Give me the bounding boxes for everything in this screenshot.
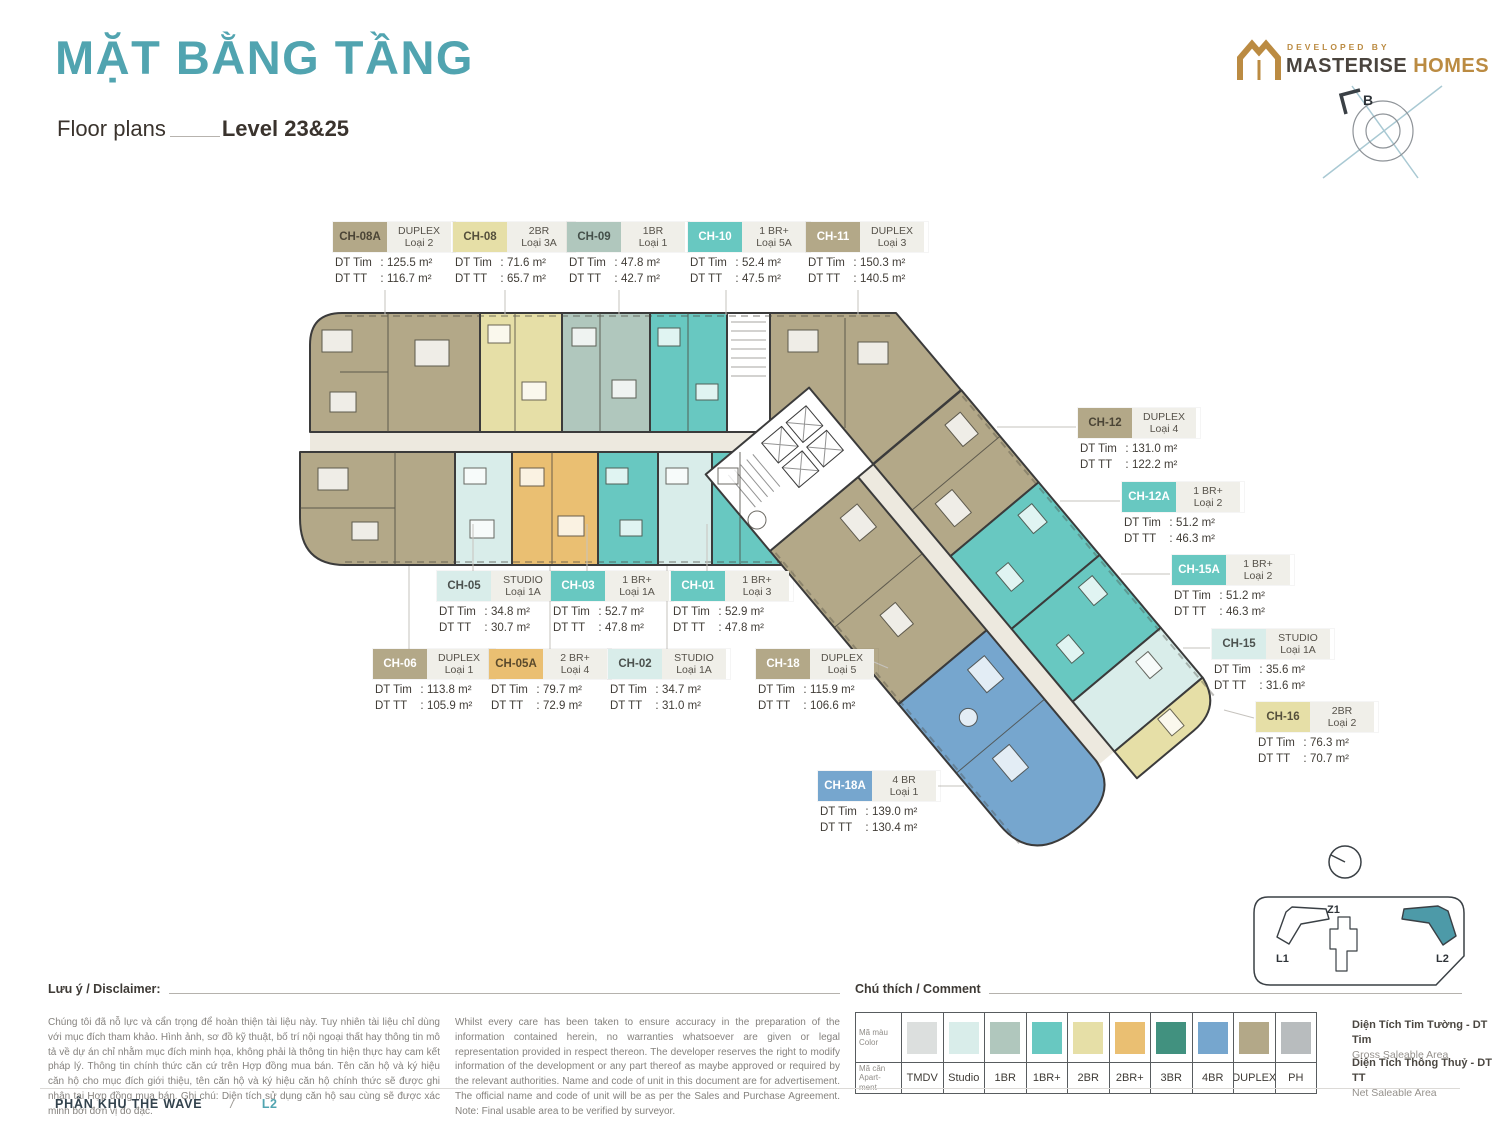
legend-color-row-label: Mã màuColor (856, 1013, 902, 1063)
gross-area-label: DT Tim (820, 805, 862, 821)
net-area-value: 47.8 m² (725, 621, 764, 637)
gross-area-label: DT Tim (375, 683, 417, 699)
unit-code-badge: CH-15A (1172, 555, 1226, 585)
net-area-value: 65.7 m² (507, 272, 546, 288)
unit-type: DUPLEX (810, 652, 874, 665)
minimap-label-L1: L1 (1276, 953, 1289, 965)
legend-title: Chú thích / Comment (855, 982, 981, 996)
legend-code-3br: 3BR (1151, 1063, 1193, 1094)
gross-area-label: DT Tim (610, 683, 652, 699)
net-area-label: DT TT (1174, 605, 1216, 621)
unit-variant: Loại 2 (1310, 717, 1374, 730)
unit-variant: Loại 2 (1226, 570, 1290, 583)
unit-variant: Loại 1A (605, 586, 669, 599)
gross-area-label: DT Tim (455, 256, 497, 272)
unit-type: 1 BR+ (742, 225, 806, 238)
unit-code-badge: CH-18 (756, 649, 810, 679)
unit-code-badge: CH-05 (437, 571, 491, 601)
unit-type: DUPLEX (860, 225, 924, 238)
site-minimap: L1 Z1 L2 (1254, 846, 1464, 985)
unit-code-badge: CH-06 (373, 649, 427, 679)
unit-label-CH-09: CH-091BRLoại 1DT Tim:47.8 m²DT TT:42.7 m… (567, 222, 689, 287)
unit-areas: DT Tim:150.3 m²DT TT:140.5 m² (806, 256, 928, 287)
net-area-value: 47.5 m² (742, 272, 781, 288)
compass-north-label: B (1363, 92, 1373, 108)
gross-area-value: 113.8 m² (427, 683, 472, 699)
developer-tagline: DEVELOPED BY (1287, 42, 1390, 52)
unit-areas: DT Tim:76.3 m²DT TT:70.7 m² (1256, 736, 1378, 767)
net-area-label: DT TT (553, 621, 595, 637)
net-area-value: 105.9 m² (427, 699, 472, 715)
unit-label-CH-10: CH-101 BR+Loại 5ADT Tim:52.4 m²DT TT:47.… (688, 222, 810, 287)
unit-label-CH-03: CH-031 BR+Loại 1ADT Tim:52.7 m²DT TT:47.… (551, 571, 673, 636)
unit-type: DUPLEX (427, 652, 491, 665)
footer: PHÂN KHU THE WAVE / L2 (55, 1097, 277, 1111)
unit-label-CH-06: CH-06DUPLEXLoại 1DT Tim:113.8 m²DT TT:10… (373, 649, 495, 714)
gross-area-value: 52.7 m² (605, 605, 644, 621)
net-area-label: DT TT (808, 272, 850, 288)
disclaimer-heading: Lưu ý / Disclaimer: (48, 982, 840, 996)
gross-area-value: 150.3 m² (860, 256, 905, 272)
unit-type-cell: 1BRLoại 1 (621, 222, 685, 252)
unit-code-badge: CH-18A (818, 771, 872, 801)
gross-area-label: DT Tim (690, 256, 732, 272)
legend-code-1brp: 1BR+ (1027, 1063, 1069, 1094)
gross-area-label: DT Tim (335, 256, 377, 272)
unit-type: 4 BR (872, 774, 936, 787)
gross-area-value: 51.2 m² (1176, 516, 1215, 532)
unit-variant: Loại 1 (427, 664, 491, 677)
unit-areas: DT Tim:71.6 m²DT TT:65.7 m² (453, 256, 575, 287)
legend-swatch-4br (1193, 1013, 1235, 1063)
gross-area-value: 125.5 m² (387, 256, 432, 272)
unit-variant: Loại 3 (725, 586, 789, 599)
legend-table: Mã màuColor Mã cănApart-ment TMDV Studio… (855, 1012, 1317, 1094)
page-subtitle: Floor plans Level 23&25 (57, 116, 349, 142)
unit-code-badge: CH-09 (567, 222, 621, 252)
unit-label-CH-15: CH-15STUDIOLoại 1ADT Tim:35.6 m²DT TT:31… (1212, 629, 1334, 694)
legend-swatch-1brp (1027, 1013, 1069, 1063)
net-area-label: DT TT (569, 272, 611, 288)
unit-code-badge: CH-12 (1078, 408, 1132, 438)
unit-variant: Loại 1A (491, 586, 555, 599)
unit-type-cell: 2BRLoại 2 (1310, 702, 1374, 732)
unit-variant: Loại 3A (507, 237, 571, 250)
gross-area-value: 76.3 m² (1310, 736, 1349, 752)
unit-type: 2 BR+ (543, 652, 607, 665)
net-area-value: 116.7 m² (387, 272, 432, 288)
net-area-label: DT TT (375, 699, 417, 715)
unit-type: DUPLEX (387, 225, 451, 238)
footer-tower-label: L2 (262, 1097, 278, 1111)
gross-area-value: 47.8 m² (621, 256, 660, 272)
legend-code-1br: 1BR (985, 1063, 1027, 1094)
unit-type: STUDIO (1266, 632, 1330, 645)
net-area-value: 70.7 m² (1310, 752, 1349, 768)
unit-areas: DT Tim:47.8 m²DT TT:42.7 m² (567, 256, 689, 287)
unit-code-badge: CH-16 (1256, 702, 1310, 732)
unit-code-badge: CH-08 (453, 222, 507, 252)
gross-area-value: 52.4 m² (742, 256, 781, 272)
legend-code-2brp: 2BR+ (1110, 1063, 1152, 1094)
net-area-label: DT TT (335, 272, 377, 288)
unit-code-badge: CH-11 (806, 222, 860, 252)
unit-code-badge: CH-10 (688, 222, 742, 252)
net-area-value: 42.7 m² (621, 272, 660, 288)
net-area-label: DT TT (1124, 532, 1166, 548)
net-area-label: DT TT (1080, 458, 1122, 474)
net-area-value: 130.4 m² (872, 821, 917, 837)
subtitle-divider-line (170, 136, 220, 137)
footer-divider (40, 1088, 1460, 1089)
net-area-value: 31.0 m² (662, 699, 701, 715)
gross-area-label: DT Tim (673, 605, 715, 621)
unit-type-cell: DUPLEXLoại 4 (1132, 408, 1196, 438)
unit-type-cell: 2BRLoại 3A (507, 222, 571, 252)
net-area-value: 122.2 m² (1132, 458, 1177, 474)
net-definition-vi: Diện Tích Thông Thuỷ - DT TT (1352, 1056, 1497, 1086)
unit-type-cell: STUDIOLoại 1A (662, 649, 726, 679)
unit-type-cell: 1 BR+Loại 3 (725, 571, 789, 601)
net-area-value: 46.3 m² (1176, 532, 1215, 548)
unit-code-badge: CH-02 (608, 649, 662, 679)
legend-code-row-label: Mã cănApart-ment (856, 1063, 902, 1094)
unit-code-badge: CH-01 (671, 571, 725, 601)
gross-area-value: 131.0 m² (1132, 442, 1177, 458)
unit-areas: DT Tim:125.5 m²DT TT:116.7 m² (333, 256, 455, 287)
unit-label-CH-11: CH-11DUPLEXLoại 3DT Tim:150.3 m²DT TT:14… (806, 222, 928, 287)
net-area-value: 140.5 m² (860, 272, 905, 288)
floor-plan-page: B L1 Z1 L2 MẶT BẰNG TẦNG Floor plans Lev… (0, 0, 1500, 1125)
minimap-label-L2: L2 (1436, 953, 1449, 965)
legend-swatch-studio (944, 1013, 986, 1063)
gross-area-label: DT Tim (1080, 442, 1122, 458)
unit-type: 1 BR+ (605, 574, 669, 587)
unit-label-CH-18: CH-18DUPLEXLoại 5DT Tim:115.9 m²DT TT:10… (756, 649, 878, 714)
legend-swatch-ph (1276, 1013, 1318, 1063)
developer-name-secondary: HOMES (1413, 55, 1489, 77)
footer-separator: / (230, 1097, 233, 1111)
unit-type-cell: 1 BR+Loại 2 (1226, 555, 1290, 585)
unit-code-badge: CH-03 (551, 571, 605, 601)
unit-label-CH-12A: CH-12A1 BR+Loại 2DT Tim:51.2 m²DT TT:46.… (1122, 482, 1244, 547)
unit-variant: Loại 1 (872, 786, 936, 799)
net-area-label: DT TT (455, 272, 497, 288)
legend-code-duplex: DUPLEX (1234, 1063, 1276, 1094)
unit-type-cell: DUPLEXLoại 3 (860, 222, 924, 252)
unit-variant: Loại 1A (662, 664, 726, 677)
net-area-value: 30.7 m² (491, 621, 530, 637)
net-area-value: 72.9 m² (543, 699, 582, 715)
unit-areas: DT Tim:115.9 m²DT TT:106.6 m² (756, 683, 878, 714)
disclaimer-title: Lưu ý / Disclaimer: (48, 982, 161, 996)
developer-name-primary: MASTERISE (1286, 55, 1407, 77)
unit-type: 1BR (621, 225, 685, 238)
unit-areas: DT Tim:34.8 m²DT TT:30.7 m² (437, 605, 559, 636)
net-area-label: DT TT (690, 272, 732, 288)
unit-type-cell: 1 BR+Loại 1A (605, 571, 669, 601)
legend-code-ph: PH (1276, 1063, 1318, 1094)
unit-areas: DT Tim:131.0 m²DT TT:122.2 m² (1078, 442, 1200, 473)
unit-variant: Loại 4 (543, 664, 607, 677)
unit-type-cell: DUPLEXLoại 5 (810, 649, 874, 679)
unit-label-CH-05A: CH-05A2 BR+Loại 4DT Tim:79.7 m²DT TT:72.… (489, 649, 611, 714)
legend-code-tmdv: TMDV (902, 1063, 944, 1094)
gross-area-label: DT Tim (569, 256, 611, 272)
legend-code-2br: 2BR (1068, 1063, 1110, 1094)
unit-type: 2BR (507, 225, 571, 238)
legend-swatch-1br (985, 1013, 1027, 1063)
unit-label-CH-15A: CH-15A1 BR+Loại 2DT Tim:51.2 m²DT TT:46.… (1172, 555, 1294, 620)
net-area-label: DT TT (758, 699, 800, 715)
legend-heading: Chú thích / Comment (855, 982, 1462, 996)
unit-areas: DT Tim:113.8 m²DT TT:105.9 m² (373, 683, 495, 714)
footer-zone-label: PHÂN KHU THE WAVE (55, 1097, 202, 1111)
gross-area-value: 35.6 m² (1266, 663, 1305, 679)
unit-type-cell: STUDIOLoại 1A (491, 571, 555, 601)
unit-code-badge: CH-12A (1122, 482, 1176, 512)
unit-label-CH-08A: CH-08ADUPLEXLoại 2DT Tim:125.5 m²DT TT:1… (333, 222, 455, 287)
gross-area-label: DT Tim (808, 256, 850, 272)
unit-areas: DT Tim:35.6 m²DT TT:31.6 m² (1212, 663, 1334, 694)
gross-area-label: DT Tim (1214, 663, 1256, 679)
area-definition-net: Diện Tích Thông Thuỷ - DT TT Net Saleabl… (1352, 1056, 1497, 1101)
legend-swatch-3br (1151, 1013, 1193, 1063)
masterise-logo-mark (1240, 44, 1278, 80)
gross-area-label: DT Tim (491, 683, 533, 699)
legend-swatch-2br (1068, 1013, 1110, 1063)
unit-code-badge: CH-08A (333, 222, 387, 252)
unit-variant: Loại 5A (742, 237, 806, 250)
unit-code-badge: CH-05A (489, 649, 543, 679)
net-area-label: DT TT (1258, 752, 1300, 768)
unit-type-cell: 2 BR+Loại 4 (543, 649, 607, 679)
net-area-label: DT TT (439, 621, 481, 637)
level-label: Level 23&25 (222, 116, 349, 142)
unit-variant: Loại 1 (621, 237, 685, 250)
unit-label-CH-05: CH-05STUDIOLoại 1ADT Tim:34.8 m²DT TT:30… (437, 571, 559, 636)
unit-variant: Loại 5 (810, 664, 874, 677)
gross-area-value: 52.9 m² (725, 605, 764, 621)
unit-label-CH-18A: CH-18A4 BRLoại 1DT Tim:139.0 m²DT TT:130… (818, 771, 940, 836)
unit-areas: DT Tim:51.2 m²DT TT:46.3 m² (1172, 589, 1294, 620)
net-area-value: 47.8 m² (605, 621, 644, 637)
net-area-value: 46.3 m² (1226, 605, 1265, 621)
net-area-label: DT TT (1214, 679, 1256, 695)
net-area-label: DT TT (491, 699, 533, 715)
unit-variant: Loại 2 (1176, 497, 1240, 510)
net-area-label: DT TT (673, 621, 715, 637)
net-area-value: 106.6 m² (810, 699, 855, 715)
minimap-label-Z1: Z1 (1327, 904, 1340, 916)
unit-type-cell: STUDIOLoại 1A (1266, 629, 1330, 659)
disclaimer-text-en: Whilst every care has been taken to ensu… (455, 1016, 840, 1120)
unit-type: DUPLEX (1132, 411, 1196, 424)
unit-label-CH-16: CH-162BRLoại 2DT Tim:76.3 m²DT TT:70.7 m… (1256, 702, 1378, 767)
unit-areas: DT Tim:34.7 m²DT TT:31.0 m² (608, 683, 730, 714)
net-area-value: 31.6 m² (1266, 679, 1305, 695)
net-area-label: DT TT (820, 821, 862, 837)
gross-area-value: 34.7 m² (662, 683, 701, 699)
legend-swatch-tmdv (902, 1013, 944, 1063)
unit-type: STUDIO (491, 574, 555, 587)
unit-variant: Loại 1A (1266, 644, 1330, 657)
unit-type-cell: 1 BR+Loại 2 (1176, 482, 1240, 512)
gross-area-value: 139.0 m² (872, 805, 917, 821)
developer-name: MASTERISEHOMES (1286, 55, 1489, 78)
page-title: MẶT BẰNG TẦNG (55, 30, 474, 85)
unit-type: STUDIO (662, 652, 726, 665)
unit-label-CH-12: CH-12DUPLEXLoại 4DT Tim:131.0 m²DT TT:12… (1078, 408, 1200, 473)
disclaimer-rule (169, 993, 840, 994)
unit-label-CH-01: CH-011 BR+Loại 3DT Tim:52.9 m²DT TT:47.8… (671, 571, 793, 636)
unit-label-CH-08: CH-082BRLoại 3ADT Tim:71.6 m²DT TT:65.7 … (453, 222, 575, 287)
unit-variant: Loại 4 (1132, 423, 1196, 436)
gross-area-label: DT Tim (758, 683, 800, 699)
subtitle-label: Floor plans (57, 116, 166, 142)
legend-swatch-2brp (1110, 1013, 1152, 1063)
unit-type: 1 BR+ (725, 574, 789, 587)
gross-definition-vi: Diện Tích Tim Tường - DT Tim (1352, 1018, 1497, 1048)
unit-type: 2BR (1310, 705, 1374, 718)
gross-area-value: 34.8 m² (491, 605, 530, 621)
legend-code-studio: Studio (944, 1063, 986, 1094)
gross-area-value: 115.9 m² (810, 683, 855, 699)
gross-area-value: 71.6 m² (507, 256, 546, 272)
legend-code-4br: 4BR (1193, 1063, 1235, 1094)
gross-area-label: DT Tim (1174, 589, 1216, 605)
unit-areas: DT Tim:79.7 m²DT TT:72.9 m² (489, 683, 611, 714)
gross-area-label: DT Tim (553, 605, 595, 621)
unit-code-badge: CH-15 (1212, 629, 1266, 659)
legend-swatch-duplex (1234, 1013, 1276, 1063)
gross-area-label: DT Tim (1124, 516, 1166, 532)
unit-areas: DT Tim:52.4 m²DT TT:47.5 m² (688, 256, 810, 287)
gross-area-value: 79.7 m² (543, 683, 582, 699)
unit-areas: DT Tim:52.9 m²DT TT:47.8 m² (671, 605, 793, 636)
compass-icon: B (1323, 86, 1442, 178)
unit-type: 1 BR+ (1226, 558, 1290, 571)
unit-type-cell: DUPLEXLoại 2 (387, 222, 451, 252)
unit-type-cell: DUPLEXLoại 1 (427, 649, 491, 679)
net-area-label: DT TT (610, 699, 652, 715)
unit-variant: Loại 2 (387, 237, 451, 250)
unit-areas: DT Tim:52.7 m²DT TT:47.8 m² (551, 605, 673, 636)
unit-type: 1 BR+ (1176, 485, 1240, 498)
legend-rule (989, 993, 1462, 994)
unit-variant: Loại 3 (860, 237, 924, 250)
unit-areas: DT Tim:51.2 m²DT TT:46.3 m² (1122, 516, 1244, 547)
gross-area-value: 51.2 m² (1226, 589, 1265, 605)
unit-type-cell: 1 BR+Loại 5A (742, 222, 806, 252)
unit-type-cell: 4 BRLoại 1 (872, 771, 936, 801)
gross-area-label: DT Tim (1258, 736, 1300, 752)
unit-areas: DT Tim:139.0 m²DT TT:130.4 m² (818, 805, 940, 836)
unit-label-CH-02: CH-02STUDIOLoại 1ADT Tim:34.7 m²DT TT:31… (608, 649, 730, 714)
gross-area-label: DT Tim (439, 605, 481, 621)
